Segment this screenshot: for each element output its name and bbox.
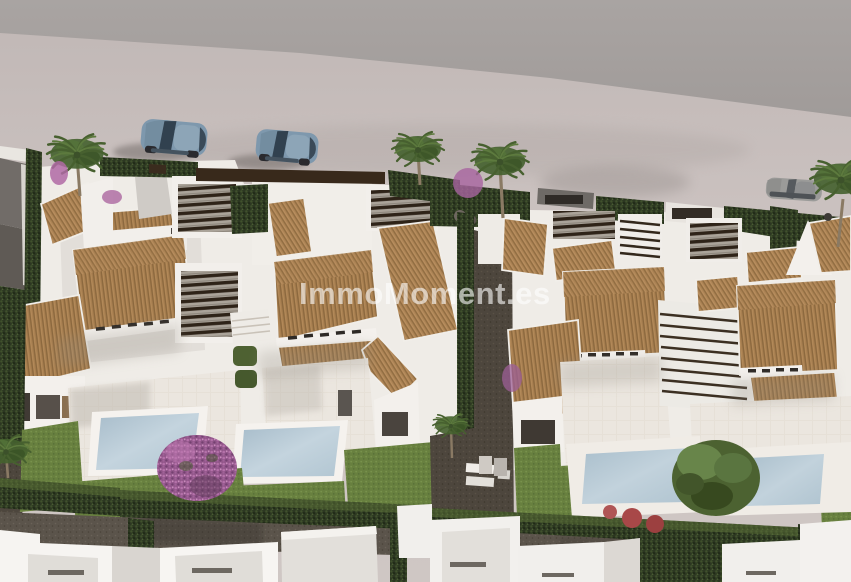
svg-text:ImmoMoment.es: ImmoMoment.es xyxy=(299,276,551,311)
